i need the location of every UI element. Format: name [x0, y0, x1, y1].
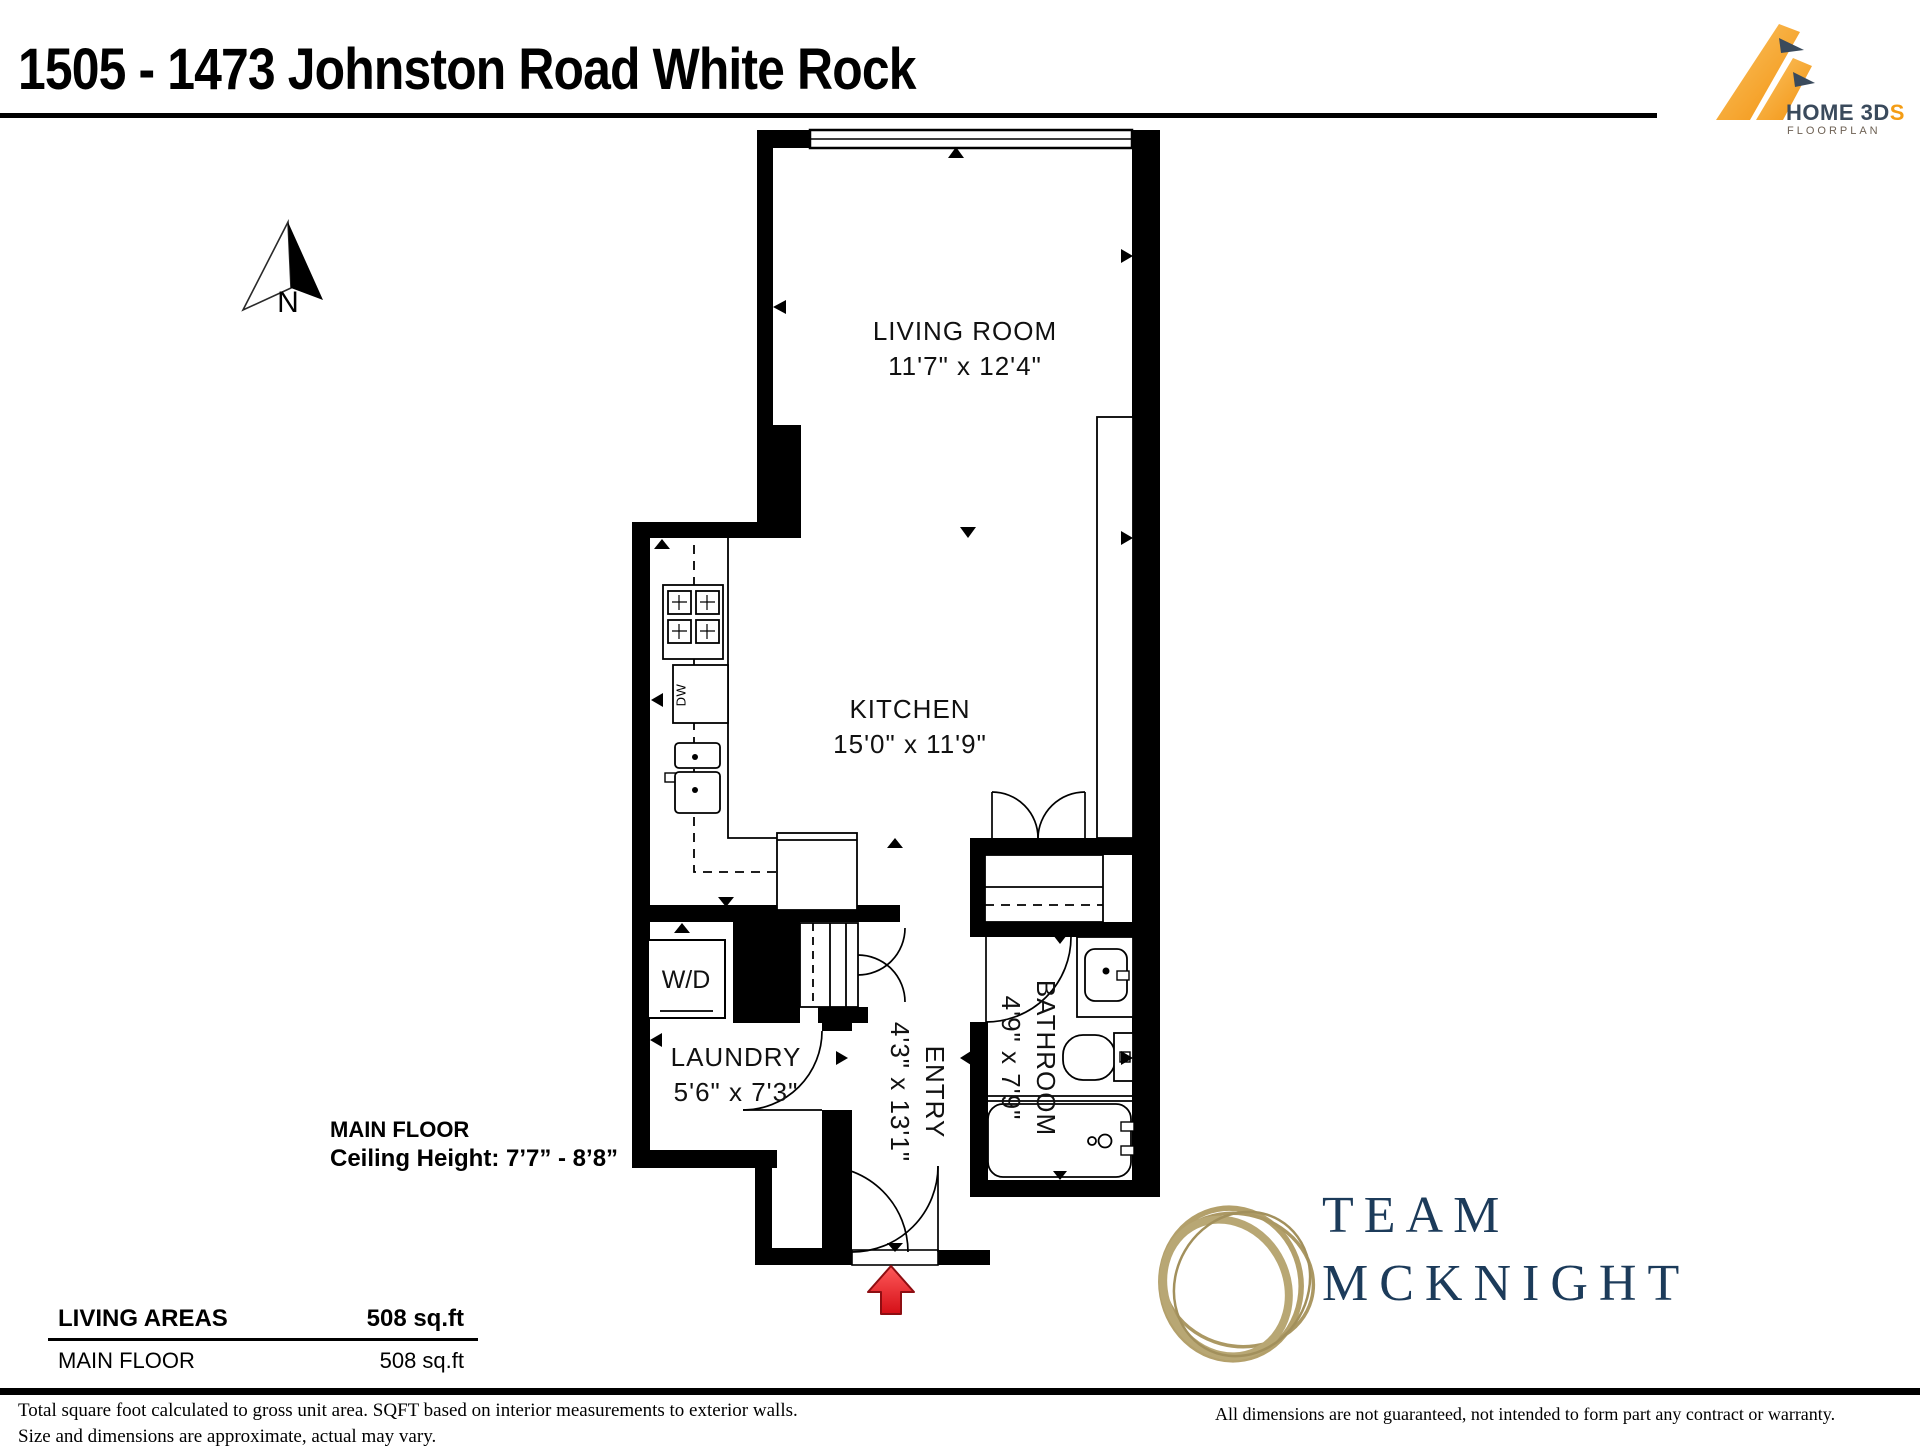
disclaimer-line: Size and dimensions are approximate, act… — [18, 1424, 798, 1450]
footer-disclaimer-left: Total square foot calculated to gross un… — [18, 1398, 798, 1450]
table-row-label: MAIN FLOOR — [58, 1348, 195, 1374]
room-label-laundry: LAUNDRY 5'6" x 7'3" — [616, 1040, 856, 1110]
room-label-bathroom: BATHROOM 4'9" x 7'9" — [993, 898, 1063, 1218]
entry-closet — [800, 923, 858, 1007]
disclaimer-line: Total square foot calculated to gross un… — [18, 1398, 798, 1424]
table-divider — [48, 1338, 478, 1341]
logo-accent: S — [1890, 100, 1905, 125]
bathroom-vanity-icon — [1077, 937, 1133, 1017]
dishwasher-label: DW — [674, 684, 689, 707]
room-dims: 4'3" x 13'1" — [882, 932, 917, 1252]
entry-arrow-icon — [868, 1266, 914, 1314]
living-areas-table: LIVING AREAS 508 sq.ft MAIN FLOOR 508 sq… — [48, 1305, 478, 1374]
room-dims: 11'7" x 12'4" — [845, 349, 1085, 384]
room-dims: 5'6" x 7'3" — [616, 1075, 856, 1110]
table-row: MAIN FLOOR 508 sq.ft — [48, 1348, 478, 1374]
window-icon — [810, 130, 1132, 148]
brand-name-line1: TEAM — [1322, 1186, 1509, 1245]
room-label-kitchen: KITCHEN 15'0" x 11'9" — [790, 692, 1030, 762]
table-row-value: 508 sq.ft — [380, 1348, 464, 1374]
kitchen-island — [777, 833, 857, 910]
brand-swirl-icon — [1140, 1187, 1336, 1381]
room-name: LIVING ROOM — [845, 314, 1085, 349]
table-header-value: 508 sq.ft — [367, 1305, 464, 1333]
room-name: KITCHEN — [790, 692, 1030, 727]
brand-name-line2: MCKNIGHT — [1322, 1254, 1690, 1313]
floor-info: MAIN FLOOR Ceiling Height: 7’7” - 8’8” — [330, 1117, 618, 1174]
title-underline — [0, 113, 1657, 118]
room-label-living: LIVING ROOM 11'7" x 12'4" — [845, 314, 1085, 384]
north-label: N — [268, 286, 308, 320]
entry-door-sill — [852, 1250, 938, 1265]
ceiling-height: Ceiling Height: 7’7” - 8’8” — [330, 1145, 618, 1174]
kitchen-sink-icon — [665, 743, 720, 813]
logo-name: HOME 3D — [1786, 100, 1890, 125]
room-label-entry: ENTRY 4'3" x 13'1" — [882, 932, 952, 1252]
room-name: BATHROOM — [1028, 898, 1063, 1218]
room-dims: 15'0" x 11'9" — [790, 727, 1030, 762]
room-dims: 4'9" x 7'9" — [993, 898, 1028, 1218]
logo-tagline: FLOORPLAN — [1787, 125, 1881, 137]
floor-name: MAIN FLOOR — [330, 1117, 618, 1143]
home3ds-logo: HOME 3DS FLOORPLAN — [1698, 14, 1913, 139]
stove-icon — [663, 585, 723, 659]
table-header-row: LIVING AREAS 508 sq.ft — [48, 1305, 478, 1333]
table-header-label: LIVING AREAS — [58, 1305, 228, 1333]
washer-dryer-label: W/D — [648, 963, 724, 998]
logo-wordmark: HOME 3DS — [1786, 100, 1905, 126]
room-name: LAUNDRY — [616, 1040, 856, 1075]
page-title: 1505 - 1473 Johnston Road White Rock — [18, 36, 916, 103]
footer-disclaimer-right: All dimensions are not guaranteed, not i… — [1215, 1404, 1835, 1425]
footer-rule — [0, 1388, 1920, 1395]
room-name: ENTRY — [917, 932, 952, 1252]
